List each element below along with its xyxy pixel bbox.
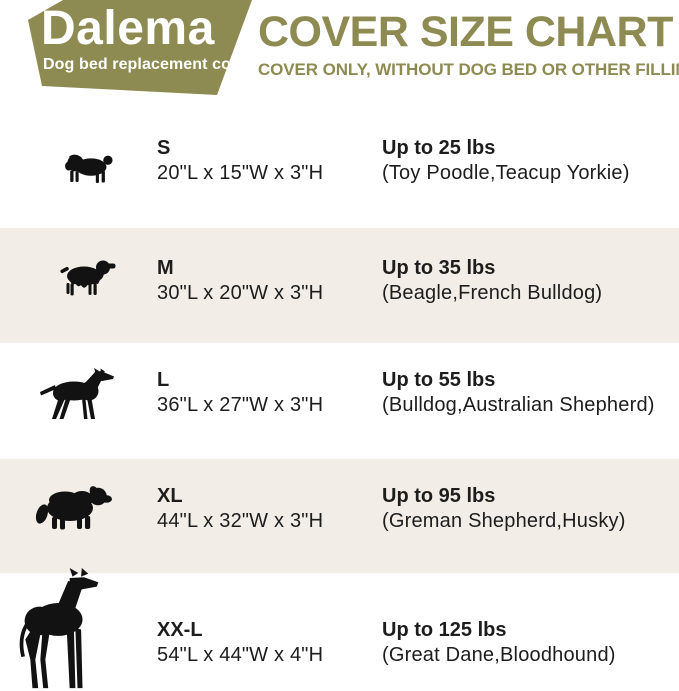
chart-title: COVER SIZE CHART bbox=[258, 6, 679, 58]
size-cell: L 36"L x 27"W x 3"H bbox=[157, 370, 323, 415]
pug-silhouette-icon bbox=[62, 152, 120, 184]
size-cell: S 20"L x 15"W x 3"H bbox=[157, 138, 323, 183]
size-label: XX-L bbox=[157, 620, 323, 640]
weight-cell: Up to 25 lbs (Toy Poodle,Teacup Yorkie) bbox=[382, 138, 630, 183]
dog-icon-cell bbox=[58, 258, 116, 296]
size-cell: XX-L 54"L x 44"W x 4"H bbox=[157, 620, 323, 665]
doberman-silhouette-icon bbox=[39, 368, 115, 421]
size-label: XL bbox=[157, 486, 323, 506]
bernese-mountain-dog-silhouette-icon bbox=[35, 483, 113, 531]
table-row-s: S 20"L x 15"W x 3"H Up to 25 lbs (Toy Po… bbox=[0, 110, 679, 228]
size-label: S bbox=[157, 138, 323, 158]
dog-icon-cell bbox=[15, 568, 110, 691]
table-row-xl: XL 44"L x 32"W x 3"H Up to 95 lbs (Grema… bbox=[0, 459, 679, 573]
size-dimensions: 54"L x 44"W x 4"H bbox=[157, 645, 323, 665]
breed-examples: (Greman Shepherd,Husky) bbox=[382, 511, 626, 531]
breed-examples: (Beagle,French Bulldog) bbox=[382, 283, 602, 303]
weight-limit: Up to 125 lbs bbox=[382, 620, 616, 640]
table-row-xxl: XX-L 54"L x 44"W x 4"H Up to 125 lbs (Gr… bbox=[0, 573, 679, 691]
size-dimensions: 36"L x 27"W x 3"H bbox=[157, 395, 323, 415]
brand-name: Dalema bbox=[41, 5, 215, 53]
size-cell: M 30"L x 20"W x 3"H bbox=[157, 258, 323, 303]
size-cell: XL 44"L x 32"W x 3"H bbox=[157, 486, 323, 531]
brand-tagline: Dog bed replacement cover bbox=[43, 56, 255, 74]
breed-examples: (Bulldog,Australian Shepherd) bbox=[382, 395, 655, 415]
chart-subtitle: COVER ONLY, WITHOUT DOG BED OR OTHER FIL… bbox=[258, 60, 679, 80]
weight-limit: Up to 95 lbs bbox=[382, 486, 626, 506]
weight-limit: Up to 55 lbs bbox=[382, 370, 655, 390]
great-dane-silhouette-icon bbox=[15, 568, 110, 691]
page: Dalema Dog bed replacement cover COVER S… bbox=[0, 0, 679, 691]
table-row-l: L 36"L x 27"W x 3"H Up to 55 lbs (Bulldo… bbox=[0, 343, 679, 459]
weight-cell: Up to 35 lbs (Beagle,French Bulldog) bbox=[382, 258, 602, 303]
table-row-m: M 30"L x 20"W x 3"H Up to 35 lbs (Beagle… bbox=[0, 228, 679, 343]
size-label: M bbox=[157, 258, 323, 278]
size-table: S 20"L x 15"W x 3"H Up to 25 lbs (Toy Po… bbox=[0, 110, 679, 691]
size-label: L bbox=[157, 370, 323, 390]
dog-icon-cell bbox=[62, 152, 120, 184]
dog-icon-cell bbox=[39, 368, 115, 421]
size-dimensions: 20"L x 15"W x 3"H bbox=[157, 163, 323, 183]
breed-examples: (Great Dane,Bloodhound) bbox=[382, 645, 616, 665]
weight-limit: Up to 35 lbs bbox=[382, 258, 602, 278]
size-dimensions: 44"L x 32"W x 3"H bbox=[157, 511, 323, 531]
weight-cell: Up to 55 lbs (Bulldog,Australian Shepher… bbox=[382, 370, 655, 415]
weight-limit: Up to 25 lbs bbox=[382, 138, 630, 158]
breed-examples: (Toy Poodle,Teacup Yorkie) bbox=[382, 163, 630, 183]
cocker-spaniel-silhouette-icon bbox=[58, 258, 116, 296]
dog-icon-cell bbox=[35, 483, 113, 531]
title-block: COVER SIZE CHART COVER ONLY, WITHOUT DOG… bbox=[258, 6, 679, 80]
size-dimensions: 30"L x 20"W x 3"H bbox=[157, 283, 323, 303]
header: Dalema Dog bed replacement cover COVER S… bbox=[0, 0, 679, 110]
weight-cell: Up to 95 lbs (Greman Shepherd,Husky) bbox=[382, 486, 626, 531]
weight-cell: Up to 125 lbs (Great Dane,Bloodhound) bbox=[382, 620, 616, 665]
